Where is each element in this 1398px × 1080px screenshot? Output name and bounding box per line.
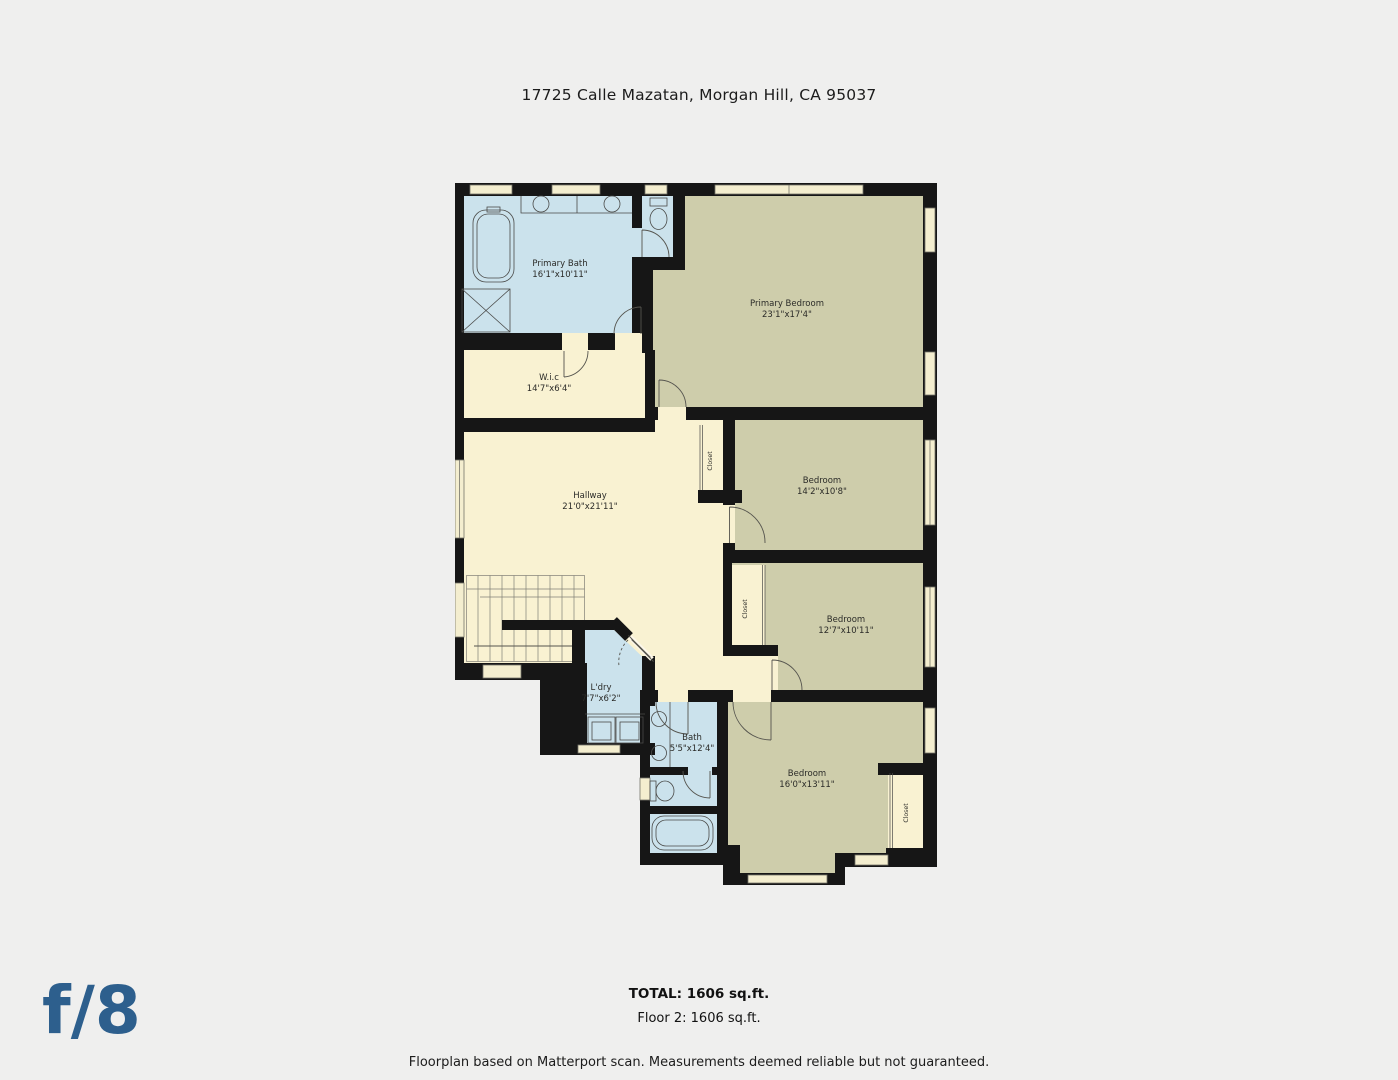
- closet3-label: Closet: [903, 803, 910, 823]
- disclaimer-text: Floorplan based on Matterport scan. Meas…: [0, 1055, 1398, 1070]
- floor-area: Floor 2: 1606 sq.ft.: [0, 1011, 1398, 1026]
- room-dims-bedroom3: 16'0"x13'11": [779, 780, 834, 790]
- room-label-laundry: L'dry: [591, 683, 612, 693]
- total-area: TOTAL: 1606 sq.ft.: [0, 986, 1398, 1002]
- room-label-primary-bedroom: Primary Bedroom: [750, 299, 824, 309]
- room-label-bedroom2: Bedroom: [827, 615, 865, 625]
- floorplan: Primary Bath 16'1"x10'11" Primary Bedroo…: [455, 183, 937, 885]
- f8-logo: f/8: [42, 978, 141, 1044]
- room-dims-primary-bath: 16'1"x10'11": [532, 270, 587, 280]
- room-label-bath: Bath: [682, 733, 702, 743]
- room-dims-wic: 14'7"x6'4": [527, 384, 572, 394]
- room-dims-bedroom1: 14'2"x10'8": [797, 487, 847, 497]
- address-title: 17725 Calle Mazatan, Morgan Hill, CA 950…: [0, 86, 1398, 104]
- room-dims-bath: 5'5"x12'4": [670, 744, 715, 754]
- room-dims-primary-bedroom: 23'1"x17'4": [762, 310, 812, 320]
- room-label-bedroom1: Bedroom: [803, 476, 841, 486]
- closet1-label: Closet: [707, 451, 714, 471]
- room-label-bedroom3: Bedroom: [788, 769, 826, 779]
- closet2-label: Closet: [742, 599, 749, 619]
- room-dims-hallway: 21'0"x21'11": [562, 502, 617, 512]
- room-dims-bedroom2: 12'7"x10'11": [818, 626, 873, 636]
- room-label-primary-bath: Primary Bath: [532, 259, 587, 269]
- room-dims-laundry: 7'7"x6'2": [581, 694, 620, 704]
- area-summary: TOTAL: 1606 sq.ft. Floor 2: 1606 sq.ft.: [0, 986, 1398, 1026]
- bedroom3-bay-floor: [735, 845, 840, 877]
- room-label-wic: W.i.c: [539, 373, 559, 383]
- room-label-hallway: Hallway: [573, 491, 607, 501]
